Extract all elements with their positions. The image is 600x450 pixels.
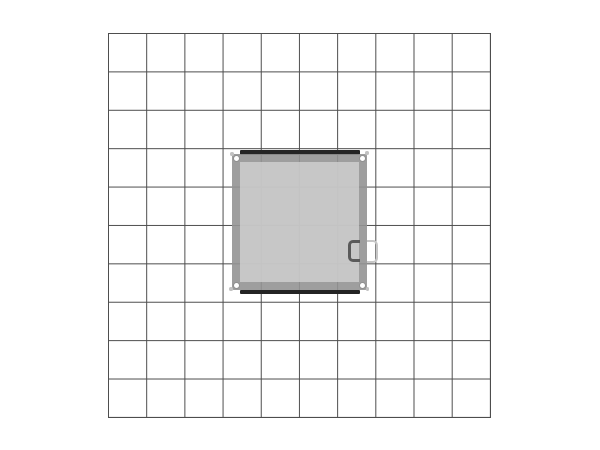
plan-view-canvas xyxy=(0,0,600,450)
corner-fastener-satellite xyxy=(366,287,370,291)
corner-fastener-dot xyxy=(360,156,365,161)
corner-fastener-satellite xyxy=(229,287,233,291)
door-handle-outer-icon xyxy=(367,240,378,263)
object-frame xyxy=(232,154,367,290)
object-bottom-rail xyxy=(240,290,360,295)
object-interior xyxy=(240,162,359,282)
corner-fastener-satellite xyxy=(230,152,234,156)
corner-fastener-dot xyxy=(360,283,365,288)
corner-fastener-dot xyxy=(234,156,239,161)
corner-fastener-dot xyxy=(234,283,239,288)
counter-plan-object[interactable] xyxy=(228,148,380,306)
door-handle-inner-icon xyxy=(348,240,360,262)
corner-fastener-satellite xyxy=(365,151,369,155)
